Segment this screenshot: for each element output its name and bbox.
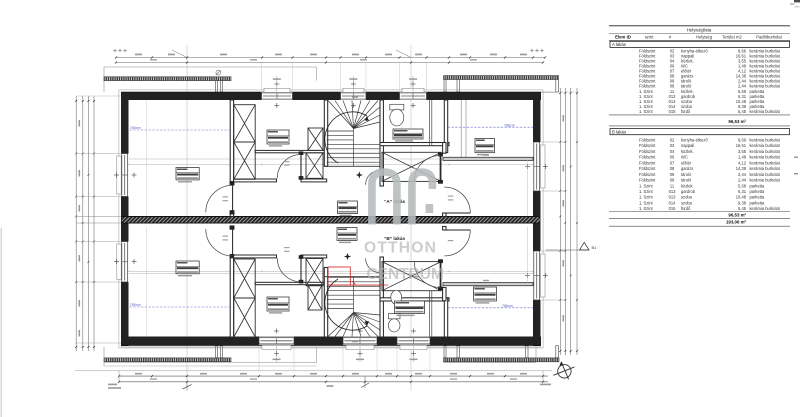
svg-text:fürdő: fürdő [681,206,691,211]
svg-text:garázs: garázs [681,166,693,171]
svg-text:fürdő: fürdő [681,109,691,114]
svg-text:Földszint: Földszint [639,143,656,148]
svg-text:CENTRUM: CENTRUM [367,266,444,283]
svg-text:kerámia burkolat: kerámia burkolat [750,138,781,143]
svg-text:015: 015 [669,206,677,211]
svg-text:Földszint: Földszint [639,160,656,165]
svg-text:013: 013 [669,189,677,194]
svg-text:Földszint: Földszint [639,149,656,154]
svg-text:kerámia burkolat: kerámia burkolat [750,109,781,114]
svg-text:5,45: 5,45 [738,109,747,114]
svg-text:Padlóburkolat: Padlóburkolat [756,35,782,40]
svg-text:16,61: 16,61 [736,143,747,148]
svg-text:5,45: 5,45 [738,206,747,211]
svg-text:Földszint: Földszint [639,155,656,160]
svg-text:OTTHON: OTTHON [364,240,437,257]
svg-text:03: 03 [670,143,675,148]
svg-text:Földszint: Földszint [639,138,656,143]
svg-text:kerámia burkolat: kerámia burkolat [750,143,781,148]
svg-text:015: 015 [669,109,677,114]
svg-text:kerámia burkolat: kerámia burkolat [750,166,781,171]
svg-text:Földszint: Földszint [639,166,656,171]
svg-text:08: 08 [670,166,675,171]
svg-text:Helyiséglista: Helyiséglista [687,28,712,33]
svg-text:08: 08 [670,178,675,183]
svg-text:kerámia burkolat: kerámia burkolat [750,160,781,165]
svg-text:06: 06 [670,155,675,160]
svg-text:1. Szint: 1. Szint [639,189,654,194]
svg-text:780cm: 780cm [130,126,141,130]
svg-text:1. Szint: 1. Szint [639,206,654,211]
svg-text:96,53 m²: 96,53 m² [728,119,746,124]
svg-text:parketta: parketta [750,183,766,188]
svg-text:kerámia burkolat: kerámia burkolat [750,206,781,211]
svg-text:013: 013 [669,195,677,200]
svg-text:1. Szint: 1. Szint [639,195,654,200]
svg-text:96,53 m²: 96,53 m² [728,213,746,218]
svg-text:kerámia burkolat: kerámia burkolat [750,178,781,183]
svg-text:tároló: tároló [681,178,692,183]
svg-text:3,55: 3,55 [738,149,747,154]
svg-text:9,38: 9,38 [738,200,747,205]
svg-text:014: 014 [669,200,677,205]
svg-text:8,66: 8,66 [738,138,747,143]
svg-text:Elem ID: Elem ID [615,35,631,40]
svg-text:1. Szint: 1. Szint [639,200,654,205]
svg-text:közlek.: közlek. [681,183,694,188]
svg-text:kerámia burkolat: kerámia burkolat [750,172,781,177]
svg-text:1. Szint: 1. Szint [639,109,654,114]
svg-text:1. Szint: 1. Szint [639,183,654,188]
svg-text:193,06 m²: 193,06 m² [726,220,747,225]
svg-text:2,44: 2,44 [738,172,747,177]
svg-text:parketta: parketta [750,200,766,205]
svg-text:B1: B1 [592,245,598,250]
svg-text:parketta: parketta [750,195,766,200]
svg-text:Terület m2: Terület m2 [722,35,742,40]
svg-text:nappali: nappali [681,143,694,148]
svg-text:kerámia burkolat: kerámia burkolat [750,155,781,160]
svg-text:szint: szint [645,35,654,40]
svg-text:5,68: 5,68 [738,183,747,188]
svg-text:4,12: 4,12 [738,160,747,165]
svg-text:Helyiség: Helyiség [696,35,713,40]
svg-text:780cm: 780cm [130,303,141,307]
svg-text:szoba: szoba [681,195,693,200]
svg-text:09: 09 [670,172,675,177]
svg-text:02: 02 [670,138,675,143]
svg-text:10,48: 10,48 [736,195,747,200]
svg-text:szoba: szoba [681,200,693,205]
svg-text:WC: WC [681,155,688,160]
svg-text:kerámia burkolat: kerámia burkolat [750,149,781,154]
svg-text:6,31: 6,31 [738,189,747,194]
svg-text:786cm: 786cm [504,123,515,127]
svg-text:14,38: 14,38 [736,166,747,171]
svg-text:előtér: előtér [681,160,692,165]
svg-text:07: 07 [670,160,675,165]
svg-text:közlek.: közlek. [681,149,694,154]
svg-text:Földszint: Földszint [639,172,656,177]
svg-text:A lakás: A lakás [612,42,626,47]
svg-text:Földszint: Földszint [639,178,656,183]
svg-text:2,44: 2,44 [738,178,747,183]
svg-text:parketta: parketta [750,189,766,194]
svg-text:04: 04 [670,149,675,154]
svg-text:786cm: 786cm [502,304,513,308]
svg-text:11: 11 [670,183,675,188]
svg-text:konyha-étkező: konyha-étkező [681,138,708,143]
svg-text:1,48: 1,48 [738,155,747,160]
svg-text:gardrob: gardrob [681,189,696,194]
svg-text:B lakás: B lakás [612,130,626,135]
svg-text:tároló: tároló [681,172,692,177]
